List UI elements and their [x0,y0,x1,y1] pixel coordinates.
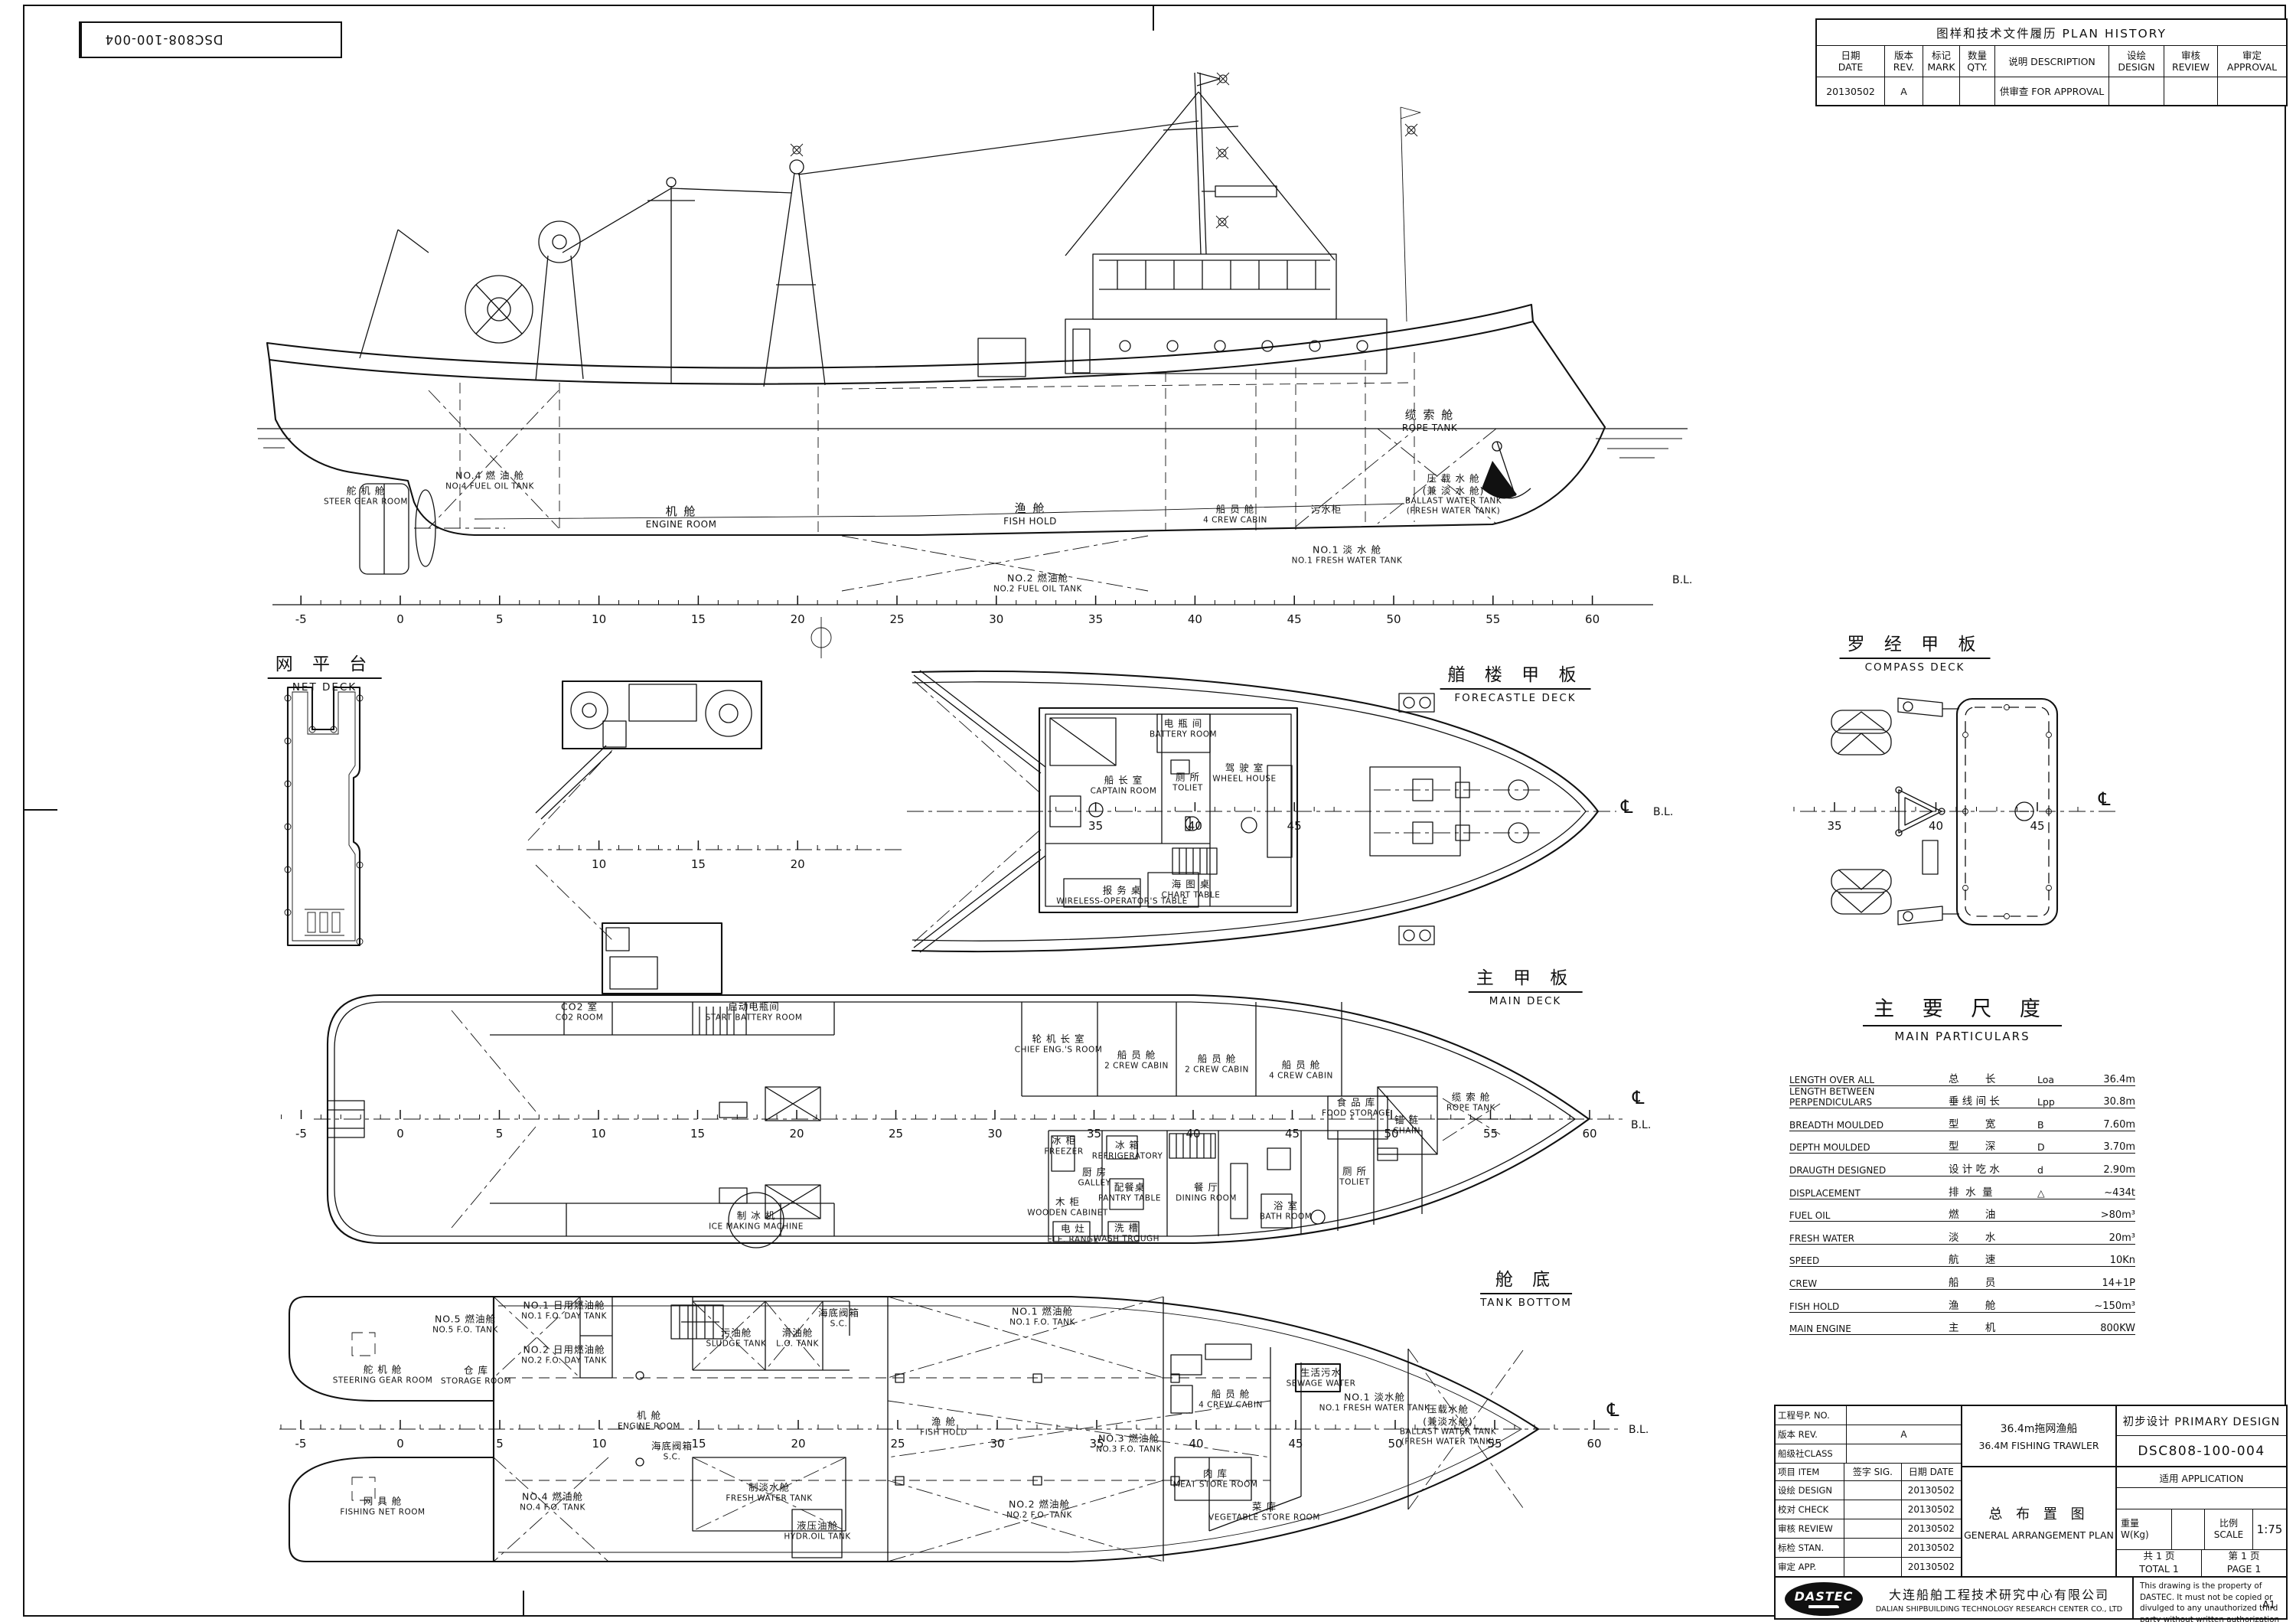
svg-text:0: 0 [396,612,404,626]
main-deck-centerline-symbol: ℄ [1632,1087,1644,1108]
svg-text:45: 45 [1287,819,1302,833]
room-label-toilet-md: 厕 所TOLIET [1339,1166,1370,1188]
ship-silhouette-icon [1808,1605,1839,1608]
svg-text:35: 35 [1087,1127,1101,1141]
svg-text:40: 40 [1189,1437,1203,1451]
svg-text:10: 10 [591,1127,605,1141]
sign-row: 审核 REVIEW 20130502 [1776,1519,1961,1539]
mast-light-icon [791,144,803,156]
label-freezer: 冰 柜FREEZER [1044,1135,1083,1157]
tank-label-sludge: 污油舱SLUDGE TANK [706,1327,767,1349]
net-deck-title: 网 平 台NET DECK [268,649,382,694]
particulars-row: DRAUGTH DESIGNED 设 计 吃 水 d 2.90m [1789,1154,2135,1177]
svg-text:0: 0 [396,1127,404,1141]
net-deck-view [276,654,375,961]
tank-label-no4-fo: NO.4 燃 油 舱NO.4 FUEL OIL TANK [445,470,534,492]
title-block-left: 工程号P. NO. 版本 REV.A 船级社CLASS 项目 ITEM签字 SI… [1776,1406,1962,1576]
tank-label-sewage-tb: 生活污水SEWAGE WATER [1287,1367,1356,1389]
svg-text:15: 15 [691,612,706,626]
label-sea-chest-1: 海底阀箱S.C. [818,1307,859,1330]
drawing-number: DSC808-100-004 [2117,1436,2286,1467]
sign-row: 设绘 DESIGN 20130502 [1776,1481,1961,1500]
room-label-crew4-tb: 船 员 舱4 CREW CABIN [1199,1389,1263,1411]
tank-label-no1-day: NO.1 日用燃油舱NO.1 F.O. DAY TANK [521,1300,607,1322]
particulars-row: CREW 船 员 14+1P [1789,1267,2135,1290]
sign-row: 校对 CHECK 20130502 [1776,1500,1961,1519]
application-label: 适用 APPLICATION [2117,1467,2286,1489]
svg-text:-5: -5 [295,1437,307,1451]
svg-text:40: 40 [1188,612,1202,626]
room-label-fish-hold: 渔 舱FISH HOLD [1003,501,1057,527]
doc-number-box: DSC808-100-004 [79,21,342,58]
tank-label-ballast: 压 载 水 舱(兼 淡 水 舱)BALLAST WATER TANK(FRESH… [1405,472,1502,517]
svg-text:-5: -5 [295,1127,307,1141]
compass-deck-title: 罗 经 甲 板COMPASS DECK [1840,629,1991,674]
sheet-format-label: A1 [2262,1600,2275,1611]
room-label-wheelhouse: 驾 驶 室WHEEL HOUSE [1212,762,1276,785]
tank-label-no1-fo: NO.1 燃油舱NO.1 F.O. TANK [1009,1306,1075,1328]
doc-number: DSC808-100-004 [80,23,246,57]
particulars-row: LENGTH BETWEEN PERPENDICULARS 垂 线 间 长 Lp… [1789,1086,2135,1109]
sign-row: 审定 APP. 20130502 [1776,1558,1961,1576]
svg-text:5: 5 [496,612,504,626]
col-description: 说明 DESCRIPTION [1995,46,2109,77]
svg-text:55: 55 [1483,1127,1498,1141]
label-refrigerator: 冰 箱REFRIGERATORY [1092,1140,1163,1162]
design-stage: 初步设计 PRIMARY DESIGN [2117,1406,2286,1436]
forecastle-baseline-label: B.L. [1653,806,1673,818]
tank-label-no2-fo-tb: NO.2 燃油舱NO.2 F.O. TANK [1006,1499,1072,1521]
class-value [1847,1444,1961,1463]
label-ele-range: 电 灶ELE. RANGE [1047,1223,1098,1245]
ship-name-en: 36.4M FISHING TRAWLER [1978,1440,2099,1451]
svg-text:40: 40 [1929,819,1943,833]
room-label-steering-gear: 舵 机 舱STEERING GEAR ROOM [333,1364,433,1386]
room-label-veg: 菜 库VEGETABLE STORE ROOM [1208,1501,1320,1523]
main-particulars-title: 主 要 尺 度 MAIN PARTICULARS [1789,992,2135,1043]
property-note: This drawing is the property of DASTEC. … [2134,1578,2286,1620]
room-label-crew2b: 船 员 舱2 CREW CABIN [1185,1053,1249,1075]
room-label-battery: 电 瓶 间BATTERY ROOM [1150,718,1217,740]
profile-view: -5051015202530354045505560 [253,65,1711,658]
tank-label-no2-fo: NO.2 燃油舱NO.2 FUEL OIL TANK [993,573,1082,595]
room-label-meat: 肉 库MEAT STORE ROOM [1173,1468,1258,1490]
tank-label-no2-day: NO.2 日用燃油舱NO.2 F.O. DAY TANK [521,1344,607,1366]
particulars-row: LENGTH OVER ALL 总 长 Loa 36.4m [1789,1063,2135,1086]
col-mark: 标记MARK [1923,46,1960,77]
label-sea-chest-2: 海底阀箱S.C. [651,1441,693,1463]
tank-label-rope: 缆 索 舱ROPE TANK [1402,408,1457,434]
svg-text:50: 50 [1386,612,1401,626]
room-label-engine-room: 机 舱ENGINE ROOM [646,504,717,530]
svg-text:25: 25 [890,1437,905,1451]
main-particulars-rows: LENGTH OVER ALL 总 长 Loa 36.4m LENGTH BET… [1789,1063,2135,1335]
dastec-logo: DASTEC [1785,1582,1863,1616]
weight-value [2172,1509,2205,1549]
svg-text:20: 20 [789,1127,804,1141]
tank-label-ballast-tb: 压载水舱(兼淡水舱)BALLAST WATER TANK(FRESH WATER… [1400,1403,1496,1447]
room-label-start-battery: 启动电瓶间START BATTERY ROOM [706,1001,803,1023]
scale-value: 1:75 [2253,1509,2286,1549]
profile-ruler: -5051015202530354045505560 [295,596,1600,626]
room-label-fishing-net: 网 具 舱FISHING NET ROOM [340,1496,425,1518]
svg-text:40: 40 [1188,819,1202,833]
label-chain: 锚 链CHAIN [1393,1115,1420,1137]
svg-text:20: 20 [791,612,805,626]
title-block-right: 初步设计 PRIMARY DESIGN DSC808-100-004 适用 AP… [2117,1406,2286,1576]
tank-label-hydr-oil: 液压油舱HYDR.OIL TANK [784,1520,850,1542]
plan-history-header: 日期DATE 版本REV. 标记MARK 数量QTY. 说明 DESCRIPTI… [1817,46,2286,77]
application-value [2117,1488,2286,1509]
scale-label: 比例SCALE [2205,1509,2253,1549]
tank-label-no3-fo: NO.3 燃油舱NO.3 F.O. TANK [1096,1433,1162,1455]
company-name: 大连船舶工程技术研究中心有限公司DALIAN SHIPBUILDING TECH… [1875,1584,2123,1614]
svg-text:30: 30 [989,612,1003,626]
tank-label-lo: 滑油舱L.O. TANK [776,1327,819,1349]
plan-history-row: 20130502 A 供审查 FOR APPROVAL [1817,77,2286,105]
title-block: 工程号P. NO. 版本 REV.A 船级社CLASS 项目 ITEM签字 SI… [1774,1405,2288,1620]
svg-text:15: 15 [691,1437,706,1451]
svg-text:60: 60 [1587,1437,1601,1451]
sig-header: 签字 SIG. [1844,1464,1901,1480]
svg-text:40: 40 [1186,1127,1200,1141]
profile-baseline-label: B.L. [1672,574,1692,586]
svg-text:20: 20 [791,1437,805,1451]
page-number: 第 1 页PAGE 1 [2202,1550,2286,1576]
col-approval: 审定APPROVAL [2218,46,2286,77]
ship-name-cn: 36.4m拖网渔船 [2001,1421,2078,1436]
svg-text:45: 45 [1288,1437,1303,1451]
total-pages: 共 1 页TOTAL 1 [2117,1550,2202,1576]
label-wash-trough: 洗 槽WASH TROUGH [1094,1222,1159,1245]
tank-bottom-centerline-symbol: ℄ [1607,1399,1619,1421]
cell-design [2109,77,2164,105]
main-deck-baseline-label: B.L. [1631,1119,1651,1131]
tank-label-fw-generator: 制淡水舱FRESH WATER TANK [726,1482,812,1504]
cell-mark [1923,77,1960,105]
main-deck-view: -5051015202530354045505560 [306,972,1668,1309]
tank-label-no4-fo-tb: NO.4 燃油舱NO.4 F.O. TANK [520,1491,585,1513]
label-wooden-cabinet: 木 柜WOODEN CABINET [1027,1196,1108,1219]
svg-text:10: 10 [592,612,606,626]
col-review: 审核REVIEW [2164,46,2218,77]
drawing-title-en: GENERAL ARRANGEMENT PLAN [1964,1529,2114,1541]
project-no-label: 工程号P. NO. [1776,1406,1847,1425]
svg-text:30: 30 [990,1437,1004,1451]
svg-text:0: 0 [396,1437,404,1451]
tank-label-no1-fw: NO.1 淡 水 舱NO.1 FRESH WATER TANK [1292,544,1403,566]
room-label-engine-tb: 机 舱ENGINE ROOM [618,1410,680,1432]
svg-text:10: 10 [592,857,606,871]
tank-bottom-baseline-label: B.L. [1629,1424,1649,1436]
particulars-row: DEPTH MOULDED 型 深 D 3.70m [1789,1131,2135,1154]
svg-text:35: 35 [1088,819,1103,833]
particulars-row: FUEL OIL 燃 油 >80m³ [1789,1199,2135,1222]
room-label-steer-gear: 舵 机 舱STEER GEAR ROOM [324,485,408,507]
svg-text:15: 15 [690,1127,705,1141]
room-label-co2: CO2 室CO2 ROOM [556,1001,604,1023]
room-label-toilet-fc: 厕 所TOLIET [1172,772,1203,794]
tank-label-rope-md: 缆 索 舱ROPE TANK [1446,1092,1495,1114]
particulars-row: MAIN ENGINE 主 机 800KW [1789,1313,2135,1336]
particulars-row: DISPLACEMENT 排 水 量 △ ~434t [1789,1177,2135,1199]
svg-text:20: 20 [791,857,805,871]
particulars-row: FISH HOLD 渔 舱 ~150m³ [1789,1290,2135,1313]
compass-deck-view: 354045 [1799,628,2135,964]
mast-light-icon [1216,147,1228,159]
compass-ruler: 354045 [1794,802,2078,833]
room-label-dining: 餐 厅DINING ROOM [1176,1182,1237,1204]
particulars-row: FRESH WATER 淡 水 20m³ [1789,1222,2135,1245]
title-block-middle: 36.4m拖网渔船36.4M FISHING TRAWLER 总 布 置 图GE… [1962,1406,2117,1576]
room-label-fish-hold-tb: 渔 舱FISH HOLD [920,1416,967,1438]
room-label-storage: 仓 库STORAGE ROOM [441,1365,511,1387]
room-label-food-storage: 食 品 库FOOD STORAGE [1322,1097,1391,1119]
room-label-bath: 浴 室BATH ROOM [1260,1200,1313,1222]
mast-light-icon [1216,216,1228,228]
fold-mark-top [1153,5,1154,31]
svg-text:10: 10 [592,1437,606,1451]
room-label-crew4: 船 员 舱4 CREW CABIN [1203,504,1267,526]
plan-history-table: 图样和技术文件履历 PLAN HISTORY 日期DATE 版本REV. 标记M… [1815,18,2288,106]
plan-history-title: 图样和技术文件履历 PLAN HISTORY [1817,20,2286,46]
class-label: 船级社CLASS [1776,1444,1847,1463]
svg-text:5: 5 [496,1127,504,1141]
tank-label-no5-fo: NO.5 燃油舱NO.5 F.O. TANK [432,1314,498,1336]
tank-label-sewage: 污水柜 [1311,504,1342,516]
svg-text:45: 45 [2030,819,2044,833]
item-header: 项目 ITEM [1776,1464,1844,1480]
cell-approval [2218,77,2286,105]
svg-text:25: 25 [889,1127,903,1141]
label-pantry: 配餐桌PANTRY TABLE [1098,1182,1161,1204]
col-design: 设绘DESIGN [2109,46,2164,77]
drawing-sheet: DSC808-100-004 图样和技术文件履历 PLAN HISTORY 日期… [0,0,2296,1622]
svg-text:30: 30 [987,1127,1002,1141]
svg-text:35: 35 [1827,819,1841,833]
fold-mark-bottom [523,1591,524,1615]
cell-description: 供审查 FOR APPROVAL [1995,77,2109,105]
compass-centerline-symbol: ℄ [2099,788,2110,810]
cell-review [2164,77,2218,105]
project-no-value [1847,1406,1961,1425]
rev-label: 版本 REV. [1776,1425,1847,1444]
particulars-row: SPEED 航 速 10Kn [1789,1245,2135,1268]
main-particulars-table: 主 要 尺 度 MAIN PARTICULARS LENGTH OVER ALL… [1789,992,2135,1335]
sign-rows: 设绘 DESIGN 20130502 校对 CHECK 20130502 审核 [1776,1481,1961,1576]
svg-text:60: 60 [1582,1127,1596,1141]
cell-qty [1960,77,1995,105]
svg-text:55: 55 [1486,612,1500,626]
svg-text:45: 45 [1285,1127,1300,1141]
svg-text:-5: -5 [295,612,307,626]
weight-label: 重量W(Kg) [2117,1509,2172,1549]
room-label-chief-eng: 轮 机 长 室CHIEF ENG.'S ROOM [1015,1033,1103,1056]
boat-deck-view: 101520 [520,658,949,1018]
cell-date: 20130502 [1817,77,1885,105]
room-label-crew2a: 船 员 舱2 CREW CABIN [1104,1049,1169,1072]
drawing-title-cn: 总 布 置 图 [1988,1503,2089,1523]
forecastle-title: 艏 楼 甲 板FORECASTLE DECK [1440,660,1591,704]
col-rev: 版本REV. [1885,46,1923,77]
svg-text:15: 15 [691,857,706,871]
room-label-captain: 船 长 室CAPTAIN ROOM [1091,775,1157,797]
col-date: 日期DATE [1817,46,1885,77]
col-qty: 数量QTY. [1960,46,1995,77]
main-deck-title: 主 甲 板MAIN DECK [1469,963,1583,1007]
particulars-row: BREADTH MOULDED 型 宽 B 7.60m [1789,1108,2135,1131]
svg-text:25: 25 [889,612,904,626]
svg-text:60: 60 [1585,612,1600,626]
date-header: 日期 DATE [1902,1464,1961,1480]
label-ice-machine: 制 冰 机ICE MAKING MACHINE [709,1210,804,1232]
cell-rev: A [1885,77,1923,105]
boat-deck-ruler: 101520 [559,840,857,871]
rev-value: A [1847,1425,1961,1444]
room-label-crew4-md: 船 员 舱4 CREW CABIN [1269,1059,1333,1082]
sign-row: 标检 STAN. 20130502 [1776,1539,1961,1558]
svg-text:35: 35 [1088,612,1103,626]
svg-text:45: 45 [1287,612,1302,626]
mast-light-icon [1405,124,1417,136]
fold-mark-left [23,809,57,811]
svg-text:5: 5 [496,1437,504,1451]
forecastle-centerline-symbol: ℄ [1621,796,1632,818]
tank-bottom-title: 舱 底TANK BOTTOM [1480,1265,1572,1309]
label-chart-table: 海 图 桌CHART TABLE [1162,879,1221,901]
